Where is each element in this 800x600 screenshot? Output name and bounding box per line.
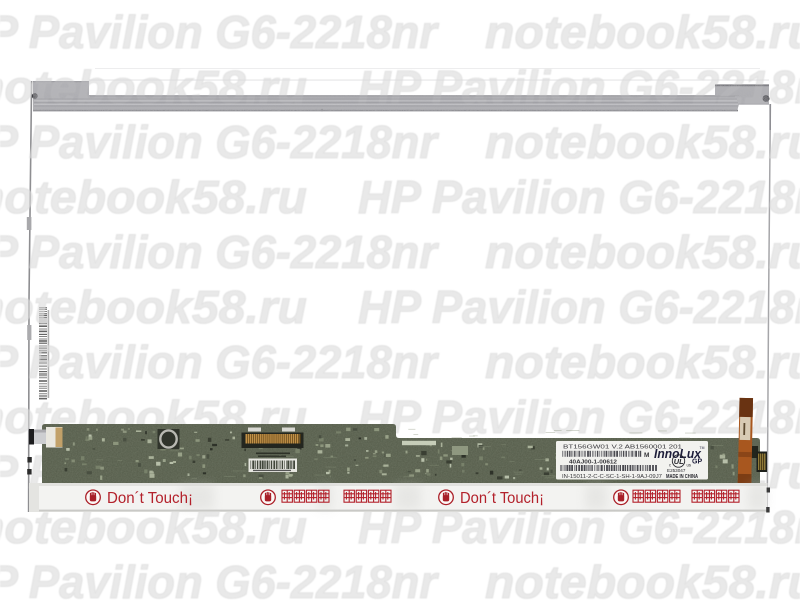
svg-text:c: c (669, 463, 671, 468)
svg-text:E253047: E253047 (667, 468, 686, 473)
svg-text:us: us (687, 463, 691, 468)
svg-text:Don´t Touch¡: Don´t Touch¡ (107, 490, 193, 507)
svg-text:IN-15011-2-C-C-SC-1-SH-1-9AJ-0: IN-15011-2-C-C-SC-1-SH-1-9AJ-09J7 (562, 474, 662, 480)
svg-text:40AJ00-1-00612: 40AJ00-1-00612 (569, 460, 617, 466)
svg-text:TM: TM (700, 446, 705, 450)
svg-text:UL: UL (674, 457, 684, 466)
svg-text:MADE IN CHINA: MADE IN CHINA (666, 474, 698, 480)
svg-text:Don´t Touch¡: Don´t Touch¡ (460, 490, 544, 507)
svg-text:M: M (644, 452, 649, 459)
svg-text:GP: GP (692, 459, 702, 466)
